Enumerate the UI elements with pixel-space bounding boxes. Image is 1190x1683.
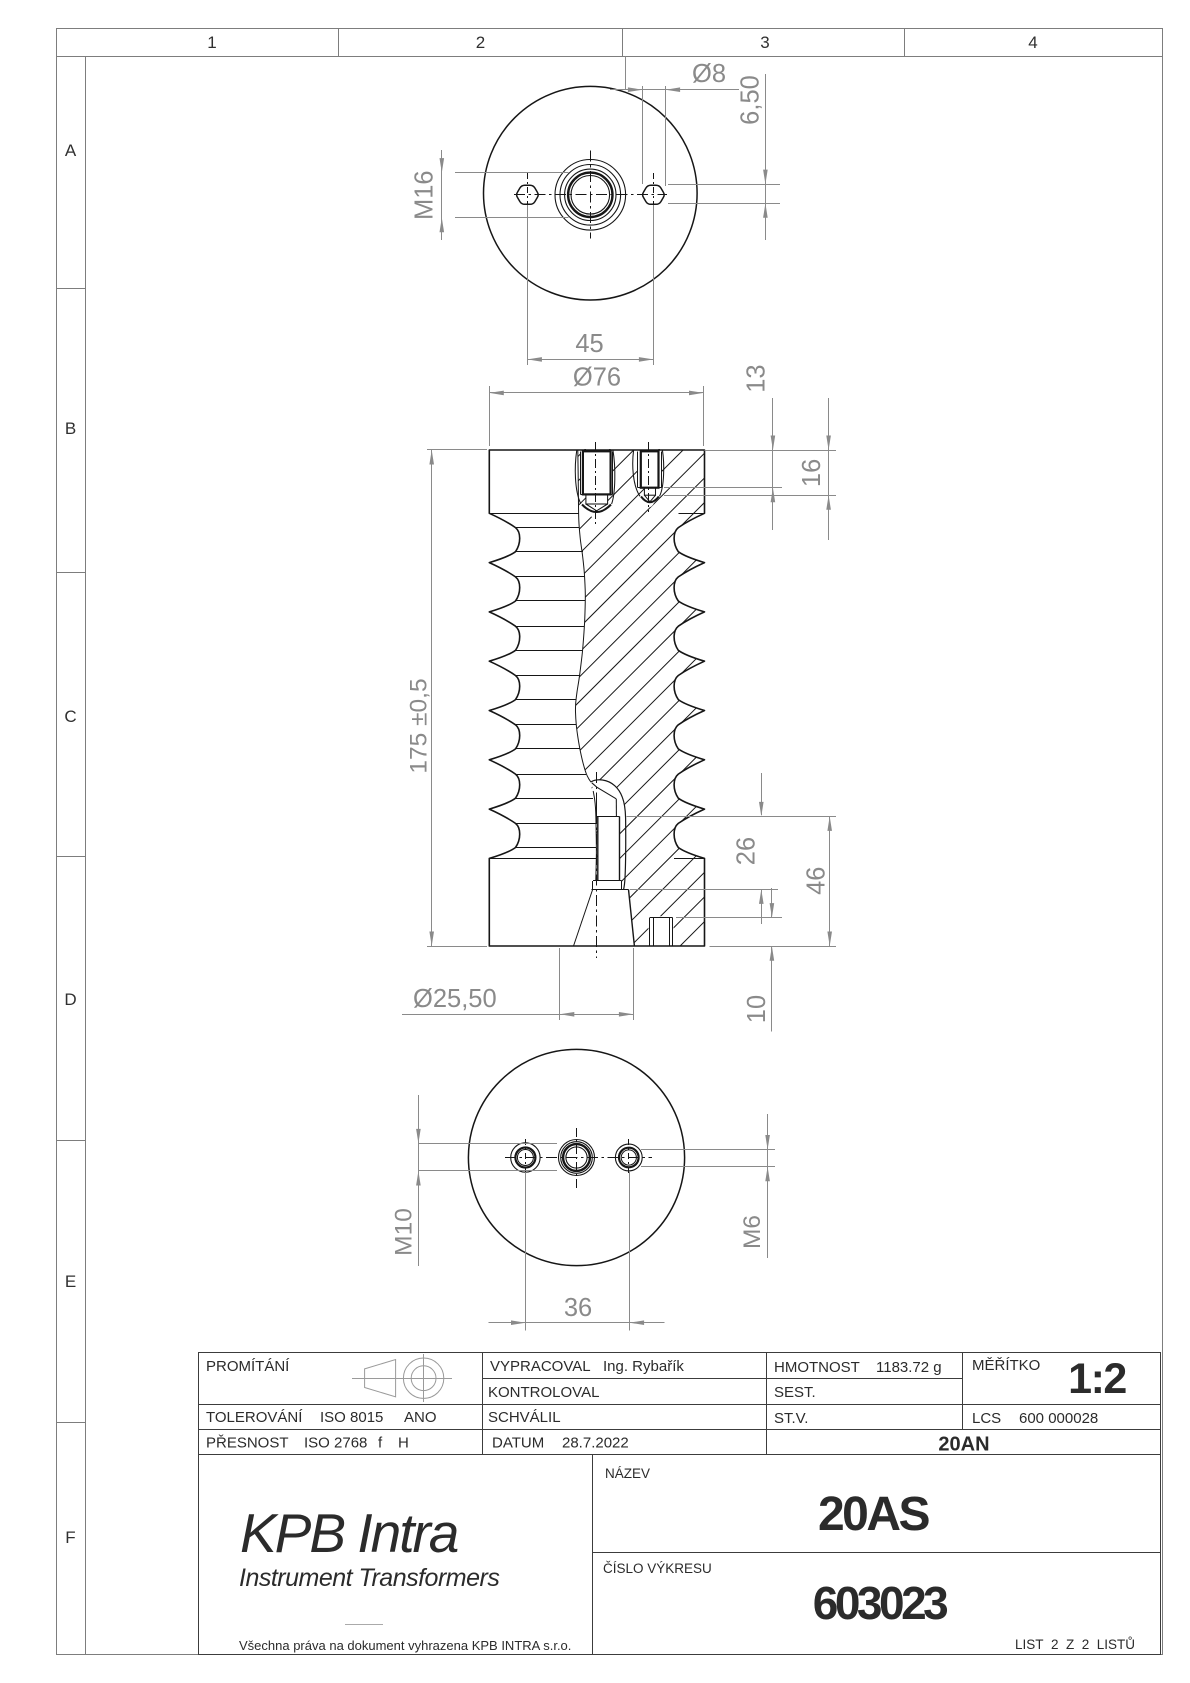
svg-text:1: 1 [207,33,216,52]
svg-text:M16: M16 [411,170,439,220]
svg-text:HMOTNOST: HMOTNOST [774,1359,860,1376]
svg-text:6,50: 6,50 [737,75,765,125]
svg-text:ISO 8015: ISO 8015 [320,1409,383,1426]
svg-text:ST.V.: ST.V. [774,1410,808,1427]
svg-text:F: F [65,1528,75,1547]
svg-text:DATUM: DATUM [492,1435,544,1452]
svg-text:Ø76: Ø76 [573,364,621,392]
svg-text:M10: M10 [390,1208,417,1256]
svg-text:4: 4 [1028,33,1037,52]
svg-text:D: D [64,990,76,1009]
svg-text:C: C [64,707,76,726]
svg-text:28.7.2022: 28.7.2022 [562,1435,629,1452]
svg-text:20AN: 20AN [938,1434,989,1456]
svg-text:A: A [65,141,77,160]
svg-text:10: 10 [743,995,771,1023]
svg-text:45: 45 [575,330,603,358]
svg-text:603023: 603023 [813,1577,947,1629]
svg-text:SCHVÁLIL: SCHVÁLIL [488,1409,561,1426]
svg-text:E: E [65,1272,76,1291]
svg-text:NÁZEV: NÁZEV [605,1466,650,1481]
svg-text:1183.72 g: 1183.72 g [876,1359,942,1376]
svg-text:20AS: 20AS [818,1488,930,1541]
svg-text:3: 3 [760,33,769,52]
svg-text:SEST.: SEST. [774,1384,816,1401]
svg-text:PROMÍTÁNÍ: PROMÍTÁNÍ [206,1358,290,1375]
svg-text:KPB Intra: KPB Intra [240,1502,458,1564]
svg-text:175 ±0,5: 175 ±0,5 [406,678,433,773]
svg-text:KONTROLOVAL: KONTROLOVAL [488,1384,599,1401]
svg-text:Ø25,50: Ø25,50 [413,985,497,1013]
svg-text:LCS: LCS [972,1410,1001,1427]
svg-text:1:2: 1:2 [1068,1355,1126,1403]
svg-text:2: 2 [476,33,485,52]
svg-text:H: H [398,1435,409,1452]
svg-text:ISO 2768: ISO 2768 [304,1435,367,1452]
svg-text:VYPRACOVAL: VYPRACOVAL [490,1358,591,1375]
svg-text:Ing. Rybařík: Ing. Rybařík [603,1358,684,1375]
svg-text:Instrument Transformers: Instrument Transformers [239,1564,499,1592]
svg-text:MĚŘÍTKO: MĚŘÍTKO [972,1357,1040,1374]
svg-text:LIST 2 Z 2 LISTŮ: LIST 2 Z 2 LISTŮ [1015,1637,1135,1652]
svg-text:16: 16 [798,459,826,487]
svg-text:B: B [65,419,76,438]
svg-text:13: 13 [743,364,771,392]
svg-text:36: 36 [564,1294,592,1322]
svg-text:46: 46 [803,867,831,895]
svg-text:TOLEROVÁNÍ: TOLEROVÁNÍ [206,1409,303,1426]
svg-text:26: 26 [733,837,761,865]
svg-text:PŘESNOST: PŘESNOST [206,1435,289,1452]
svg-text:Ø8: Ø8 [692,60,726,88]
svg-text:M6: M6 [739,1215,766,1249]
svg-text:Všechna práva na dokument vyhr: Všechna práva na dokument vyhrazena KPB … [239,1638,571,1653]
svg-text:ANO: ANO [404,1409,437,1426]
svg-text:ČÍSLO VÝKRESU: ČÍSLO VÝKRESU [603,1561,712,1576]
svg-text:600 000028: 600 000028 [1019,1410,1098,1427]
